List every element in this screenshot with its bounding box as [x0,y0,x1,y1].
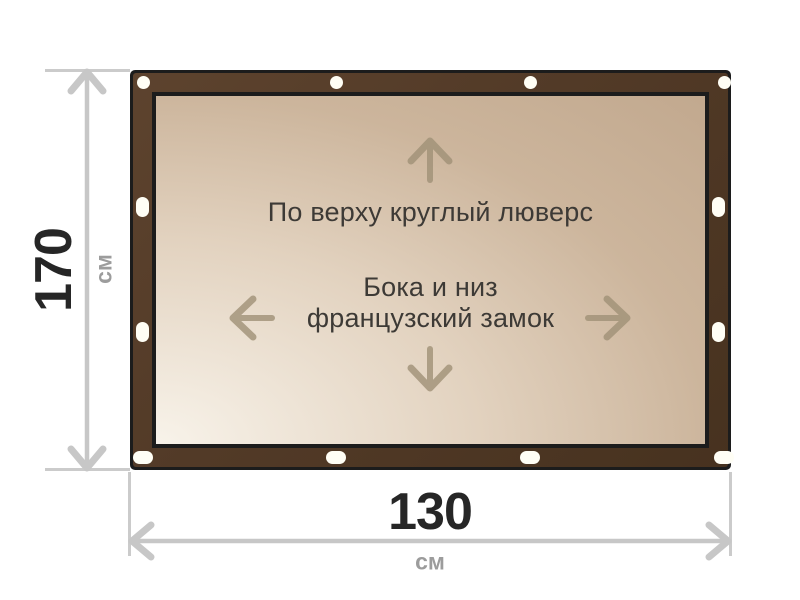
sides-bottom-annotation: Бока и низ французский замок [156,272,705,334]
grommet-icon [718,76,731,89]
grommet-icon [712,197,725,217]
product-diagram: 170 см По верху круглый люверс [0,0,800,600]
grommet-icon [520,451,540,464]
arrow-down-icon [405,343,455,395]
arrow-up-icon [405,134,455,186]
height-value: 170 [24,228,84,312]
grommet-icon [712,322,725,342]
grommet-icon [137,76,150,89]
height-unit: см [91,254,118,284]
grommet-icon [136,322,149,342]
grommet-icon [136,197,149,217]
width-unit: см [415,549,445,576]
grommet-icon [714,451,734,464]
grommet-icon [326,451,346,464]
banner-surface: По верху круглый люверс Бока и низ франц… [152,92,709,448]
width-value: 130 [388,482,472,542]
grommet-icon [133,451,153,464]
top-edge-annotation: По верху круглый люверс [156,197,705,228]
sides-bottom-annotation-line1: Бока и низ [156,272,705,303]
grommet-icon [524,76,537,89]
banner-frame: По верху круглый люверс Бока и низ франц… [130,70,731,470]
sides-bottom-annotation-line2: французский замок [156,303,705,334]
grommet-icon [330,76,343,89]
